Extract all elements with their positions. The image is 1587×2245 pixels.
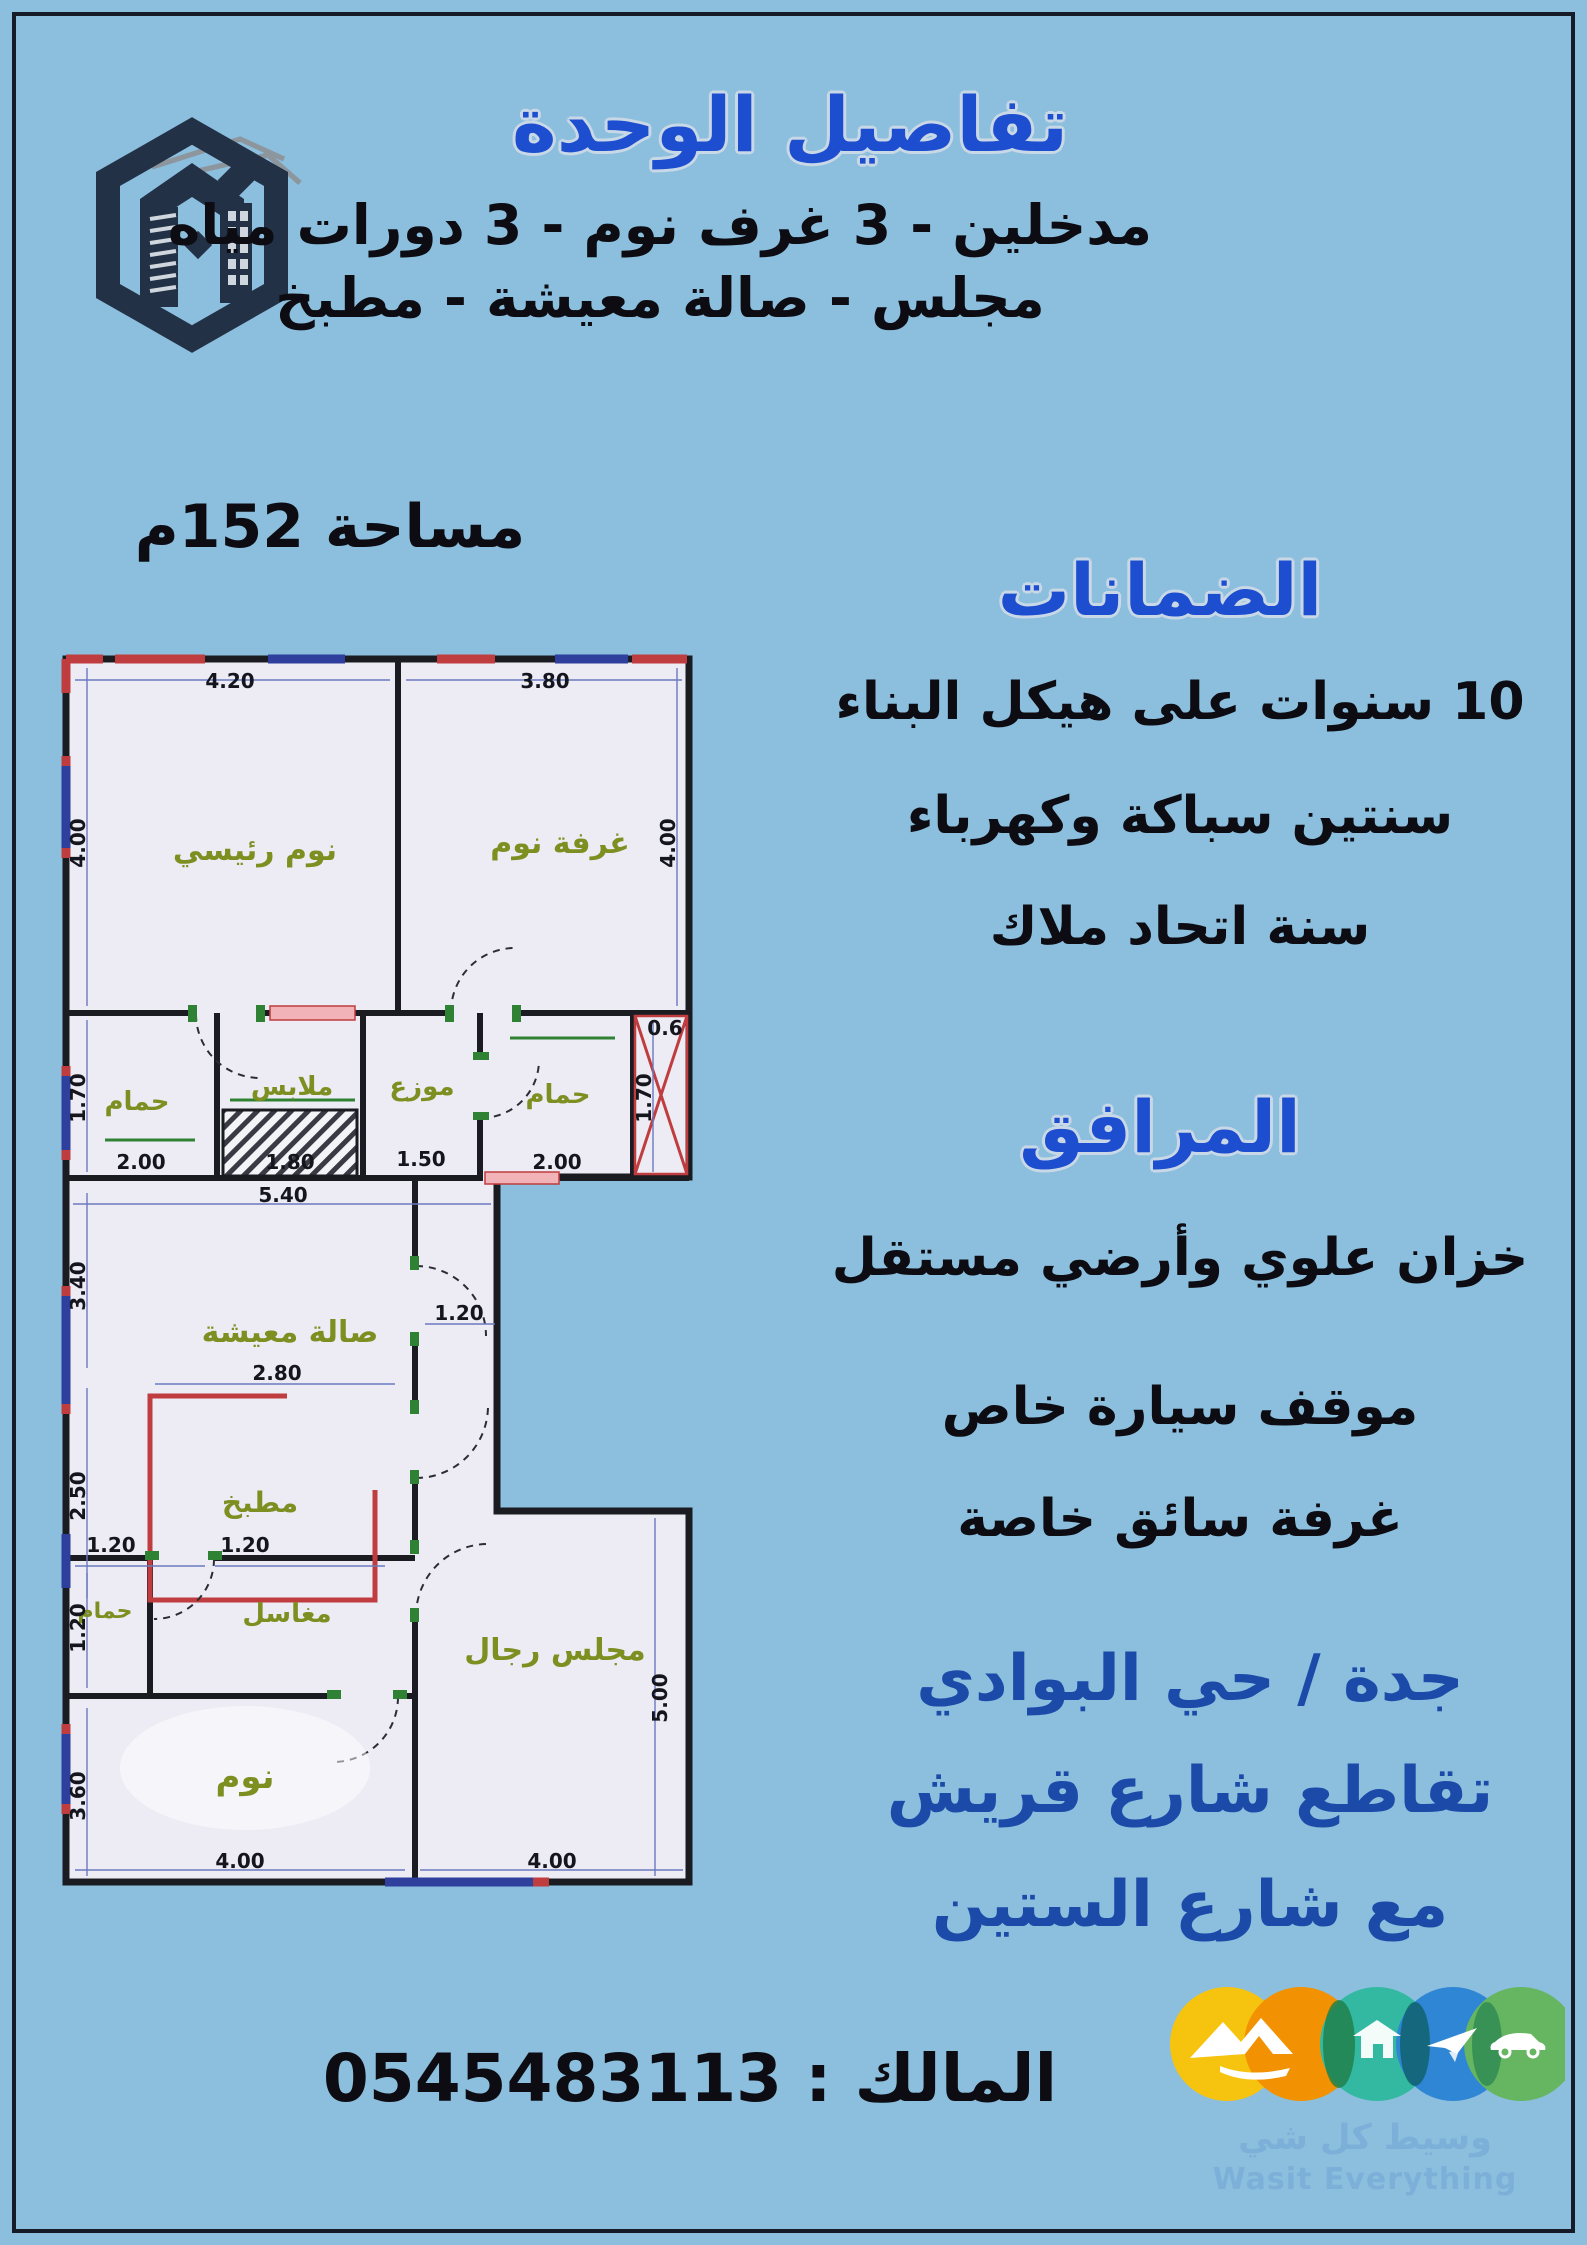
unit-features-line2: مجلس - صالة معيشة - مطبخ: [120, 266, 1200, 330]
dim-label: 2.80: [252, 1361, 301, 1385]
dim-label: 4.00: [656, 818, 680, 867]
dim-label: 4.00: [66, 818, 90, 867]
room-label-bedroom-2: نوم: [215, 1757, 274, 1797]
dim-label: 1.20: [86, 1533, 135, 1557]
dim-label: 1.50: [396, 1147, 445, 1171]
dim-label: 4.20: [205, 669, 254, 693]
brand-name-arabic: وسيط كل شي: [1165, 2118, 1565, 2158]
room-label-bath-1: حمام: [105, 1087, 170, 1117]
dim-label: 4.00: [215, 1849, 264, 1873]
dim-label: 1.70: [632, 1073, 656, 1122]
dim-label: 1.70: [66, 1073, 90, 1122]
room-label-bedroom: غرفة نوم: [490, 826, 630, 861]
dim-label: 3.60: [66, 1771, 90, 1820]
warranties-heading: الضمانات: [840, 548, 1480, 632]
warranty-item: سنة اتحاد ملاك: [800, 897, 1560, 957]
room-label-master-bedroom: نوم رئيسي: [173, 833, 337, 868]
dim-label: 2.00: [532, 1150, 581, 1174]
page-title: تفاصيل الوحدة: [280, 80, 1300, 169]
area-label: مساحة 152م: [110, 492, 550, 562]
dim-label: 3.80: [520, 669, 569, 693]
facility-item: موقف سيارة خاص: [800, 1377, 1560, 1437]
dim-label: 1.20: [66, 1603, 90, 1652]
dim-label: 3.40: [66, 1261, 90, 1310]
floor-plan: نوم رئيسيغرفة نومحمامملابسموزعحمامصالة م…: [55, 648, 700, 1898]
dim-label: 1.80: [265, 1150, 314, 1174]
location-line: جدة / حي البوادي: [820, 1642, 1560, 1716]
room-label-bath-2: حمام: [526, 1080, 591, 1110]
warranty-item: سنتين سباكة وكهرباء: [800, 786, 1560, 846]
dim-label: 5.40: [258, 1183, 307, 1207]
facility-item: غرفة سائق خاصة: [800, 1489, 1560, 1549]
owner-label: المالك :: [805, 2040, 1057, 2117]
room-label-majlis: مجلس رجال: [464, 1633, 645, 1668]
location-line: مع شارع الستين: [820, 1868, 1560, 1942]
owner-phone-number: 0545483113: [323, 2040, 782, 2117]
unit-features-line1: مدخلين - 3 غرف نوم - 3 دورات مياه: [120, 193, 1200, 257]
facility-item: خزان علوي وأرضي مستقل: [800, 1228, 1560, 1288]
brand-name-english: Wasit Everything: [1165, 2162, 1565, 2197]
location-line: تقاطع شارع قريش: [820, 1754, 1560, 1828]
room-label-living-room: صالة معيشة: [202, 1315, 379, 1350]
room-label-closet: ملابس: [251, 1072, 333, 1102]
owner-contact-line: المالك : 0545483113: [260, 2040, 1120, 2117]
room-label-hall: موزع: [389, 1072, 454, 1102]
room-label-kitchen: مطبخ: [222, 1486, 298, 1519]
dim-label: 4.00: [527, 1849, 576, 1873]
dim-label: 0.6: [647, 1016, 682, 1040]
facilities-heading: المرافق: [840, 1085, 1480, 1169]
dim-label: 5.00: [648, 1673, 672, 1722]
dim-label: 1.20: [220, 1533, 269, 1557]
room-label-sinks: مغاسل: [242, 1599, 331, 1629]
dim-label: 1.20: [434, 1301, 483, 1325]
dim-label: 2.00: [116, 1150, 165, 1174]
dim-label: 2.50: [66, 1471, 90, 1520]
brand-logo-icon: [1165, 1980, 1565, 2115]
warranty-item: 10 سنوات على هيكل البناء: [800, 672, 1560, 732]
flyer-page: تفاصيل الوحدة مدخلين - 3 غرف نوم - 3 دور…: [0, 0, 1587, 2245]
